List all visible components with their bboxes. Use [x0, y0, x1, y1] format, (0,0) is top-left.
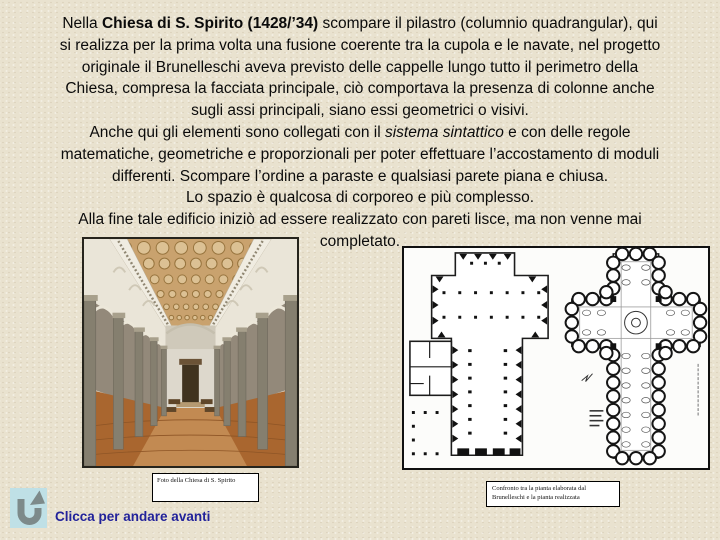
next-link[interactable]: Clicca per andare avanti	[55, 509, 210, 524]
photo-caption-text: Foto della Chiesa di S. Spirito	[157, 477, 235, 484]
floor-plans-illustration	[404, 248, 708, 468]
photo-caption: Foto della Chiesa di S. Spirito	[152, 473, 259, 502]
paragraph-line: originale il Brunelleschi aveva previsto…	[6, 57, 714, 79]
presentation-slide: Nella Chiesa di S. Spirito (1428/’34) sc…	[0, 0, 720, 540]
paragraph-line: si realizza per la prima volta una fusio…	[6, 35, 714, 57]
church-nave-illustration	[84, 239, 297, 466]
paragraph-line: matematiche, geometriche e proporzionali…	[6, 144, 714, 166]
plans-caption: Confronto tra la pianta elaborata dal Br…	[486, 481, 620, 507]
paragraph-line: Anche qui gli elementi sono collegati co…	[6, 122, 714, 144]
u-turn-arrow-icon[interactable]	[10, 488, 47, 528]
floor-plans-image	[402, 246, 710, 470]
paragraph-line: Alla fine tale edificio iniziò ad essere…	[6, 209, 714, 231]
plans-caption-line2: Brunelleschi e la pianta realizzata	[492, 493, 619, 502]
paragraph-line: Nella Chiesa di S. Spirito (1428/’34) sc…	[6, 13, 714, 35]
paragraph-line: differenti. Scompare l’ordine a paraste …	[6, 166, 714, 188]
main-paragraph: Nella Chiesa di S. Spirito (1428/’34) sc…	[6, 13, 714, 253]
plans-caption-line1: Confronto tra la pianta elaborata dal	[492, 484, 619, 493]
church-interior-photo	[82, 237, 299, 468]
u-turn-arrow-glyph	[10, 488, 47, 528]
paragraph-line: sugli assi principali, siano essi geomet…	[6, 100, 714, 122]
paragraph-line: Lo spazio è qualcosa di corporeo e più c…	[6, 187, 714, 209]
paragraph-line: Chiesa, compresa la facciata principale,…	[6, 78, 714, 100]
